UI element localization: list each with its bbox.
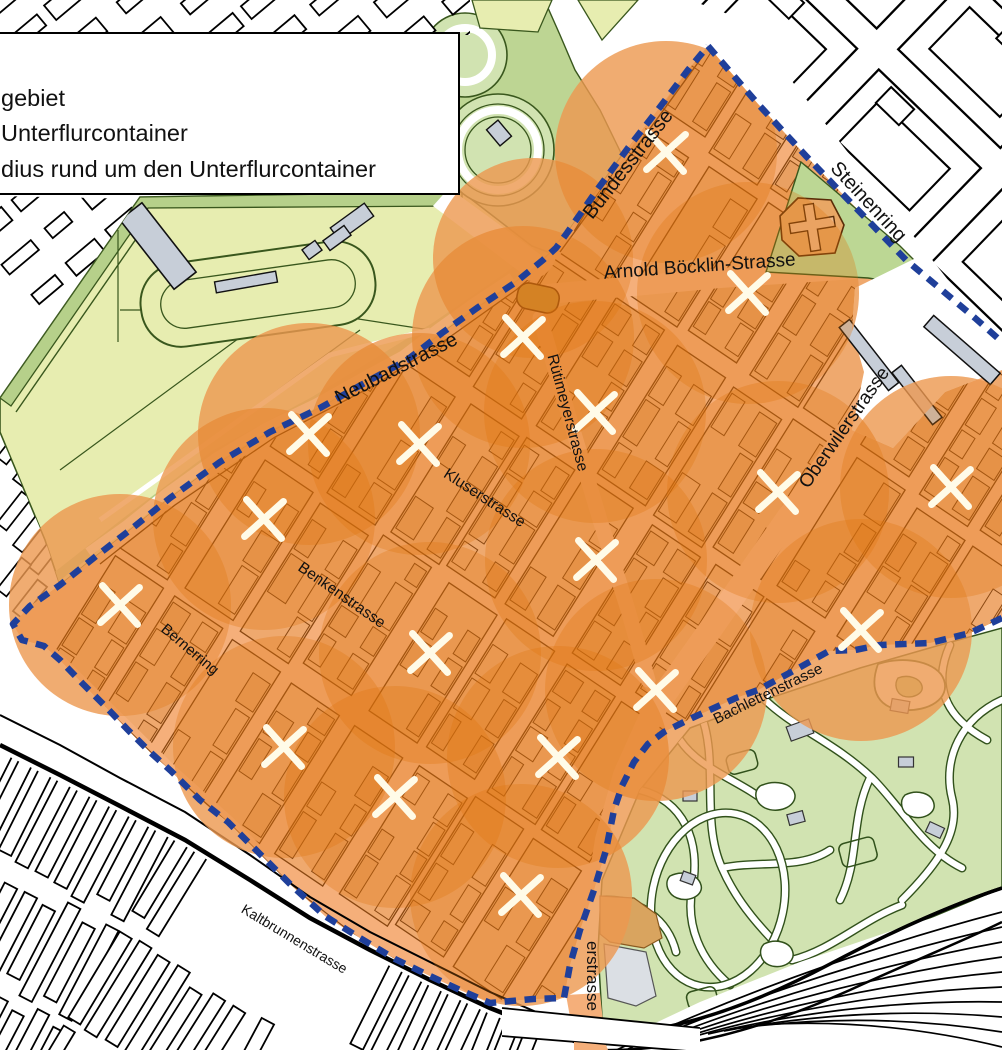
svg-text:gebiet: gebiet [1, 85, 65, 111]
svg-text:dius rund um den Unterflurcont: dius rund um den Unterflurcontainer [1, 156, 376, 182]
svg-text:erstrasse: erstrasse [583, 941, 602, 1011]
svg-text:Unterflurcontainer: Unterflurcontainer [1, 120, 188, 146]
